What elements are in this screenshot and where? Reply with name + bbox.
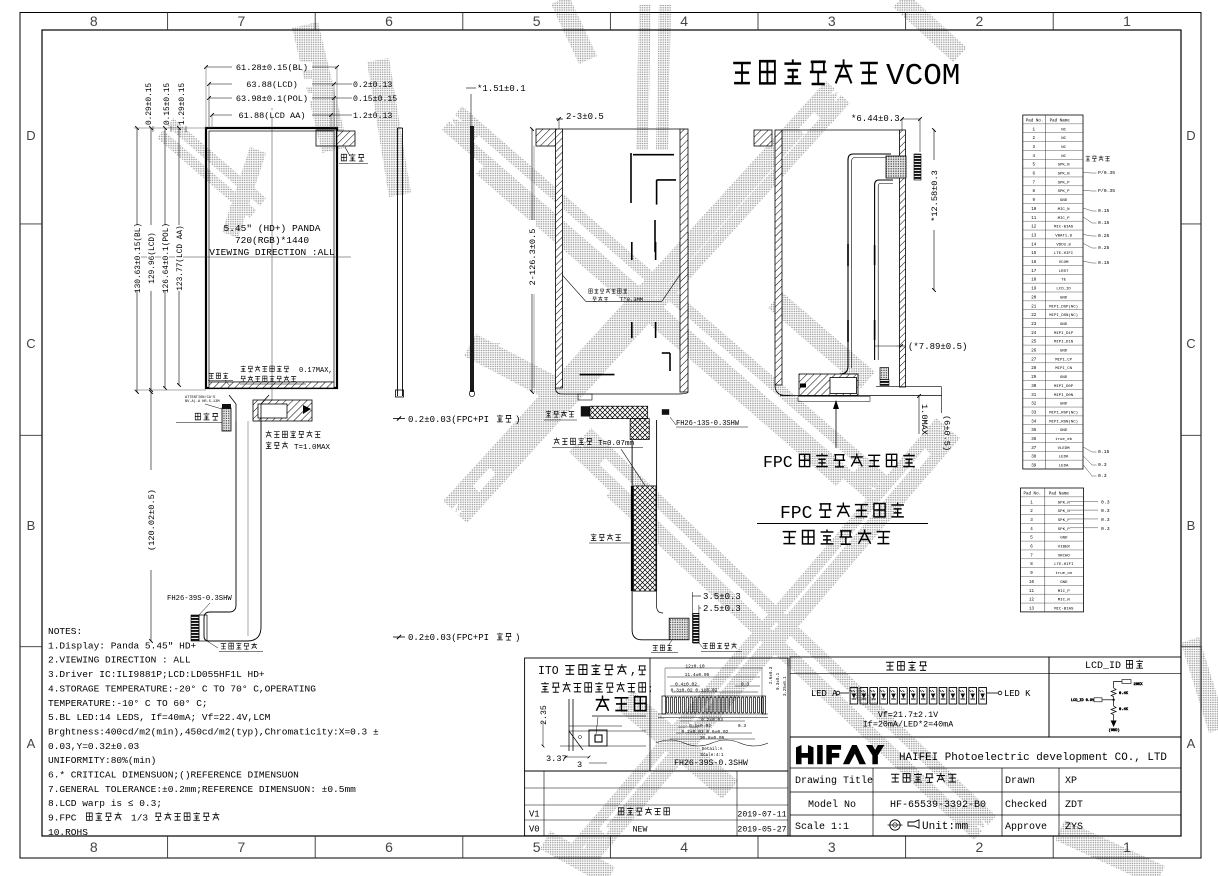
svg-text:8: 8	[90, 839, 98, 855]
svg-text:28: 28	[1031, 367, 1037, 371]
svg-text:*1.51±0.1: *1.51±0.1	[477, 84, 526, 94]
svg-text:A: A	[1187, 736, 1196, 751]
svg-text:38: 38	[1031, 456, 1037, 460]
svg-text:34: 34	[1031, 420, 1037, 424]
svg-text:Scale 1:1: Scale 1:1	[795, 821, 849, 833]
svg-text:SPK_N: SPK_N	[1058, 510, 1071, 514]
svg-text:0.3±0.1: 0.3±0.1	[777, 672, 781, 690]
svg-text:SPK_P: SPK_P	[1058, 190, 1071, 194]
svg-text:SPK_P: SPK_P	[1058, 528, 1071, 532]
svg-text:126.64±0.1(POL): 126.64±0.1(POL)	[163, 223, 171, 293]
svg-text:C: C	[1186, 336, 1195, 351]
svg-text:31: 31	[1031, 394, 1037, 398]
svg-text:VBAT1.8: VBAT1.8	[1055, 234, 1072, 238]
svg-text:17: 17	[1031, 270, 1037, 274]
svg-text:20KX: 20KX	[1134, 683, 1144, 687]
svg-text:MIPI_D1P: MIPI_D1P	[1054, 332, 1074, 336]
svg-text:10.8±0.05: 10.8±0.05	[700, 735, 725, 741]
svg-text:GND: GND	[1060, 581, 1068, 585]
svg-text:2.6±0.3: 2.6±0.3	[770, 666, 774, 684]
svg-text:36: 36	[1031, 438, 1037, 442]
svg-text:MIPI_RSN(NC): MIPI_RSN(NC)	[1049, 419, 1078, 424]
svg-text:MIPI_DSP(NC): MIPI_DSP(NC)	[1049, 304, 1078, 309]
svg-text:7: 7	[238, 839, 246, 855]
svg-text:Pad No.: Pad No.	[1024, 491, 1042, 496]
svg-text:A: A	[27, 736, 36, 751]
svg-text:SPK_N: SPK_N	[1058, 173, 1071, 177]
svg-text:3.5±0.3: 3.5±0.3	[703, 592, 741, 602]
svg-text:16: 16	[1031, 261, 1037, 265]
svg-text:true_on: true_on	[1055, 571, 1072, 576]
svg-text:11: 11	[1029, 590, 1035, 594]
svg-text:5.45" (HD+) PANDA: 5.45" (HD+) PANDA	[224, 223, 321, 234]
svg-text:NC: NC	[1061, 128, 1066, 132]
svg-text:5: 5	[533, 839, 541, 855]
svg-text:MIPI_CP: MIPI_CP	[1055, 358, 1072, 362]
svg-text:LRST: LRST	[1059, 270, 1069, 274]
svg-text:SPK_N: SPK_N	[1058, 501, 1071, 505]
svg-text:LEDA: LEDA	[1059, 465, 1069, 469]
svg-text:19: 19	[1031, 288, 1037, 292]
svg-text:Brghtness:400cd/m2(min),450cd/: Brghtness:400cd/m2(min),450cd/m2(typ),Ch…	[48, 726, 379, 737]
svg-text:Vf=21.7±2.1V: Vf=21.7±2.1V	[878, 710, 938, 720]
svg-text:If=20mA/LED*2=40mA: If=20mA/LED*2=40mA	[863, 720, 954, 730]
svg-text:*12.58±0.3: *12.58±0.3	[930, 170, 940, 222]
svg-text:VCOM: VCOM	[886, 59, 960, 94]
svg-text:7.GENERAL TOLERANCE:±0.2mm;REF: 7.GENERAL TOLERANCE:±0.2mm;REFERENCE DIM…	[48, 784, 356, 795]
svg-text:LCD_ID: LCD_ID	[1056, 288, 1071, 292]
svg-text:LCD_ID 0.9V: LCD_ID 0.9V	[1071, 699, 1095, 703]
svg-text:): )	[515, 415, 520, 425]
svg-text:TE: TE	[1061, 279, 1066, 283]
svg-text:0.3: 0.3	[741, 682, 750, 688]
svg-text:61.28±0.15(BL): 61.28±0.15(BL)	[236, 63, 308, 73]
svg-text:FH26-39S-0.3SHW: FH26-39S-0.3SHW	[167, 595, 232, 603]
svg-text:6.* CRITICAL DIMENSUON;()REFER: 6.* CRITICAL DIMENSUON;()REFERENCE DIMEN…	[48, 770, 299, 781]
svg-text:24: 24	[1031, 332, 1037, 336]
svg-text:GND: GND	[1060, 429, 1068, 433]
svg-text:SPK_P: SPK_P	[1058, 519, 1071, 523]
svg-text:22: 22	[1031, 314, 1037, 318]
svg-text:30: 30	[1031, 385, 1037, 389]
svg-text:VIBER: VIBER	[1058, 546, 1071, 550]
svg-text:GND: GND	[1060, 537, 1068, 541]
svg-text:V1: V1	[529, 810, 540, 820]
svg-text:P/0.35: P/0.35	[1098, 188, 1115, 194]
svg-text:Detail:A: Detail:A	[702, 747, 723, 752]
svg-text:18: 18	[1031, 279, 1037, 283]
svg-text:true_eb: true_eb	[1055, 437, 1072, 442]
svg-text:Drawn: Drawn	[1005, 776, 1035, 787]
svg-text:2.VIEWING DIRECTION : ALL: 2.VIEWING DIRECTION : ALL	[48, 655, 191, 666]
svg-text:3.Driver IC:ILI9881P;LCD:LD055: 3.Driver IC:ILI9881P;LCD:LD055HF1L HD+	[48, 669, 265, 680]
svg-text:T=0.07mm: T=0.07mm	[598, 440, 635, 448]
svg-text:0.3: 0.3	[738, 723, 747, 729]
svg-text::: :	[647, 684, 654, 696]
svg-text:0.2±0.03(FPC+PI: 0.2±0.03(FPC+PI	[408, 415, 489, 425]
svg-text:HAIFEI Photoelectric developme: HAIFEI Photoelectric development CO., LT…	[899, 752, 1167, 764]
svg-text:MIC_P: MIC_P	[1058, 217, 1071, 221]
svg-text:NC: NC	[1061, 155, 1066, 159]
svg-text:): )	[515, 633, 520, 643]
svg-text:(120.02±0.5): (120.02±0.5)	[147, 489, 157, 551]
svg-text:1: 1	[1123, 13, 1131, 29]
svg-text:Drawing Title: Drawing Title	[795, 775, 873, 787]
svg-text:GND: GND	[1060, 199, 1068, 203]
svg-text:3: 3	[577, 760, 582, 770]
svg-text:GND: GND	[1060, 323, 1068, 327]
svg-text:MIC-BIAS: MIC-BIAS	[1054, 226, 1074, 230]
svg-text:0.15±0.15: 0.15±0.15	[164, 83, 172, 125]
svg-text:Unit:mm: Unit:mm	[922, 821, 969, 833]
svg-text:0.25: 0.25	[1098, 233, 1110, 239]
svg-text:P/0.35: P/0.35	[1098, 170, 1115, 176]
svg-text:0.17MAX,: 0.17MAX,	[299, 367, 333, 375]
svg-text:29: 29	[1031, 376, 1037, 380]
svg-text:V0: V0	[529, 825, 540, 835]
svg-text:10: 10	[1029, 581, 1035, 585]
svg-text:HF-65539-3392-B0: HF-65539-3392-B0	[890, 800, 986, 811]
svg-text:2019-07-11: 2019-07-11	[737, 811, 786, 820]
svg-text:FH26-39S-0.3SHW: FH26-39S-0.3SHW	[674, 759, 748, 768]
svg-text:ITO: ITO	[538, 665, 559, 678]
svg-text:MIC_N: MIC_N	[1058, 599, 1071, 603]
svg-text:FPC: FPC	[763, 453, 793, 472]
svg-text:4: 4	[680, 839, 688, 855]
svg-text:12: 12	[1031, 226, 1037, 230]
svg-text:LTE-HIFI: LTE-HIFI	[1054, 563, 1073, 567]
svg-text:XP: XP	[1065, 776, 1077, 787]
svg-text:ZYS: ZYS	[1065, 822, 1083, 833]
svg-text:ZDT: ZDT	[1065, 800, 1083, 811]
svg-text:0.3±0.02 0.1±0.02: 0.3±0.02 0.1±0.02	[671, 688, 718, 694]
svg-text:0.15: 0.15	[1098, 208, 1110, 214]
svg-text:27: 27	[1031, 358, 1037, 362]
svg-text:Scale:4:1: Scale:4:1	[700, 753, 724, 758]
svg-text:GND: GND	[1060, 376, 1068, 380]
svg-text:0.2±0.03: 0.2±0.03	[701, 717, 723, 723]
svg-text:2: 2	[976, 13, 984, 29]
svg-text:MIPI_D0N: MIPI_D0N	[1054, 394, 1074, 398]
svg-text:B: B	[1187, 518, 1196, 533]
svg-text:2019-05-27: 2019-05-27	[737, 826, 786, 835]
svg-text:0.3: 0.3	[1098, 473, 1107, 479]
svg-text:NOTES:: NOTES:	[48, 626, 82, 637]
svg-text:MIPI_CN: MIPI_CN	[1055, 367, 1072, 371]
svg-text:0.2±0.03 0.6±0.02: 0.2±0.03 0.6±0.02	[682, 729, 729, 735]
svg-text:SPK_N: SPK_N	[1058, 164, 1071, 168]
svg-text:B: B	[27, 518, 36, 533]
svg-text:33: 33	[1031, 411, 1037, 415]
svg-text:0.2±0.13: 0.2±0.13	[353, 81, 392, 90]
svg-text:25: 25	[1031, 341, 1037, 345]
svg-text:10.ROHS: 10.ROHS	[48, 827, 88, 838]
svg-text:61.88(LCD AA): 61.88(LCD AA)	[238, 111, 305, 121]
svg-text:2.35: 2.35	[540, 705, 549, 725]
svg-text:C: C	[26, 336, 35, 351]
svg-text:LCD_ID: LCD_ID	[1085, 661, 1121, 672]
svg-text:1/3: 1/3	[131, 813, 148, 824]
svg-text:VLEDM: VLEDM	[1058, 447, 1071, 451]
svg-text:720(RGB)*1440: 720(RGB)*1440	[235, 235, 309, 246]
svg-text:5.BL LED:14 LEDS, If=40mA; Vf=: 5.BL LED:14 LEDS, If=40mA; Vf=22.4V,LCM	[48, 712, 271, 723]
svg-text:0.1±0.02: 0.1±0.02	[689, 723, 711, 729]
svg-text:14: 14	[1031, 243, 1037, 247]
svg-text:2: 2	[976, 839, 984, 855]
svg-text:130.63±0.15(BL): 130.63±0.15(BL)	[135, 223, 143, 293]
svg-text:0.4±0.02: 0.4±0.02	[675, 682, 697, 688]
svg-text:D: D	[26, 128, 35, 143]
svg-text:0.03,Y=0.32±0.03: 0.03,Y=0.32±0.03	[48, 741, 140, 752]
svg-text:UNIFORMITY:80%(min): UNIFORMITY:80%(min)	[48, 755, 156, 766]
svg-text:13: 13	[1031, 234, 1037, 238]
svg-text:BV-A|-A HR-5-13M: BV-A|-A HR-5-13M	[185, 399, 220, 404]
svg-text:35: 35	[1031, 429, 1037, 433]
svg-text:5: 5	[533, 13, 541, 29]
svg-text:1.Display: Panda 5.45" HD+: 1.Display: Panda 5.45" HD+	[48, 640, 197, 651]
svg-text:3.37: 3.37	[546, 754, 567, 764]
svg-text:8: 8	[90, 13, 98, 29]
svg-text:21: 21	[1031, 305, 1037, 309]
svg-text:Pad Name: Pad Name	[1049, 491, 1070, 496]
svg-text:0.3: 0.3	[1101, 526, 1110, 532]
svg-text:VIEWING DIRECTION :ALL: VIEWING DIRECTION :ALL	[209, 247, 335, 258]
svg-text:NC: NC	[1061, 146, 1066, 150]
svg-text:0.4K: 0.4K	[1119, 692, 1129, 696]
svg-text:(GND): (GND)	[1109, 728, 1120, 733]
svg-text:0.3: 0.3	[1098, 462, 1107, 468]
svg-text:12: 12	[1029, 599, 1035, 603]
svg-text:MIPI_D1N: MIPI_D1N	[1054, 341, 1074, 345]
svg-text:4.STORAGE TEMPERATURE:-20° C T: 4.STORAGE TEMPERATURE:-20° C TO 70° C,OP…	[48, 683, 316, 694]
svg-text:T=1.0MAX: T=1.0MAX	[294, 444, 331, 452]
svg-text:(*7.89±0.5): (*7.89±0.5)	[908, 342, 967, 352]
svg-text:26: 26	[1031, 350, 1037, 354]
svg-text:0.15±0.15: 0.15±0.15	[353, 95, 397, 104]
svg-text:D: D	[1186, 128, 1195, 143]
svg-text:GND: GND	[1060, 350, 1068, 354]
svg-text:MIPI_DSN(NC): MIPI_DSN(NC)	[1049, 313, 1078, 318]
svg-text:MIPI_RSP(NC): MIPI_RSP(NC)	[1049, 410, 1078, 415]
svg-text:Pad Name: Pad Name	[1050, 118, 1071, 123]
svg-text:0.3: 0.3	[1101, 508, 1110, 514]
svg-text:FPC: FPC	[780, 504, 813, 524]
svg-text:TEMPERATURE:-10° C TO 60° C;: TEMPERATURE:-10° C TO 60° C;	[48, 698, 208, 709]
svg-text:LED A: LED A	[811, 689, 838, 699]
svg-text:4: 4	[680, 13, 688, 29]
svg-text:3.25±0.1: 3.25±0.1	[784, 676, 788, 696]
svg-text:0.25: 0.25	[1098, 245, 1110, 251]
svg-text:12±0.10: 12±0.10	[685, 664, 705, 670]
svg-text:0.15: 0.15	[1098, 220, 1110, 226]
svg-text:13: 13	[1029, 607, 1035, 611]
svg-text:1.2±0.13: 1.2±0.13	[353, 112, 392, 121]
svg-text:6: 6	[385, 13, 393, 29]
svg-text:37: 37	[1031, 447, 1037, 451]
svg-text:MIC_P: MIC_P	[1058, 590, 1071, 594]
svg-text:3: 3	[828, 13, 836, 29]
svg-text:MIC-BIAS: MIC-BIAS	[1054, 607, 1074, 611]
svg-text:0.3: 0.3	[1101, 499, 1110, 505]
svg-text:1.29±0.15: 1.29±0.15	[179, 83, 187, 125]
svg-text:GND: GND	[1060, 296, 1068, 300]
svg-text:1.0MAX: 1.0MAX	[919, 404, 929, 435]
svg-text:6: 6	[385, 839, 393, 855]
svg-text:63.98±0.1(POL): 63.98±0.1(POL)	[236, 94, 308, 104]
svg-text:129.96(LCD): 129.96(LCD)	[149, 232, 157, 283]
svg-text:VCOM: VCOM	[1059, 261, 1069, 265]
svg-text:Pad No.: Pad No.	[1026, 118, 1044, 123]
svg-text:3: 3	[828, 839, 836, 855]
svg-text:SPK_P: SPK_P	[1058, 181, 1071, 185]
svg-text:GND: GND	[1060, 403, 1068, 407]
svg-text:VRCHO: VRCHO	[1058, 554, 1071, 558]
svg-text:0.15: 0.15	[1098, 449, 1110, 455]
svg-text:0.29±0.15: 0.29±0.15	[146, 83, 154, 125]
svg-text:Model No: Model No	[808, 799, 856, 811]
svg-text:123.77(LCD AA): 123.77(LCD AA)	[177, 225, 185, 291]
svg-text:15: 15	[1031, 252, 1037, 256]
svg-text:Checked: Checked	[1005, 799, 1047, 811]
svg-text:9.FPC: 9.FPC	[48, 813, 77, 824]
svg-text:MIC_N: MIC_N	[1058, 208, 1071, 212]
svg-text:Approve: Approve	[1005, 822, 1047, 833]
svg-text:2-3±0.5: 2-3±0.5	[566, 112, 604, 122]
svg-text:32: 32	[1031, 403, 1037, 407]
svg-text:2-126.3±0.5: 2-126.3±0.5	[528, 229, 538, 286]
svg-text:11: 11	[1031, 217, 1037, 221]
svg-text:1: 1	[1123, 839, 1131, 855]
svg-text:LED K: LED K	[1004, 689, 1031, 699]
svg-text:VDD2.8: VDD2.8	[1056, 243, 1071, 247]
svg-text:23: 23	[1031, 323, 1037, 327]
svg-text:63.88(LCD): 63.88(LCD)	[246, 80, 298, 90]
svg-text:MIPI_D0P: MIPI_D0P	[1054, 385, 1074, 389]
svg-text:NC: NC	[1061, 137, 1066, 141]
svg-text:NEW: NEW	[633, 826, 648, 835]
svg-text:LTE-HIFI: LTE-HIFI	[1054, 252, 1073, 256]
svg-text:,: ,	[630, 665, 637, 678]
svg-text:7: 7	[238, 13, 246, 29]
svg-text:(6±0.5): (6±0.5)	[942, 415, 952, 451]
svg-text:LEDK: LEDK	[1059, 456, 1069, 460]
svg-text:2.5±0.3: 2.5±0.3	[703, 604, 741, 614]
svg-text:0.4K: 0.4K	[1119, 708, 1129, 712]
svg-text:0.3: 0.3	[1101, 517, 1110, 523]
svg-text:0.2±0.03(FPC+PI: 0.2±0.03(FPC+PI	[408, 633, 489, 643]
svg-text:T*0.3MM: T*0.3MM	[620, 296, 643, 303]
svg-text:39: 39	[1031, 465, 1037, 469]
svg-text:8.LCD warp is ≤ 0.3;: 8.LCD warp is ≤ 0.3;	[48, 798, 162, 809]
svg-text:20: 20	[1031, 296, 1037, 300]
svg-text:10: 10	[1031, 208, 1037, 212]
svg-text:0.15: 0.15	[1098, 260, 1110, 266]
svg-text:*6.44±0.3: *6.44±0.3	[851, 114, 900, 124]
